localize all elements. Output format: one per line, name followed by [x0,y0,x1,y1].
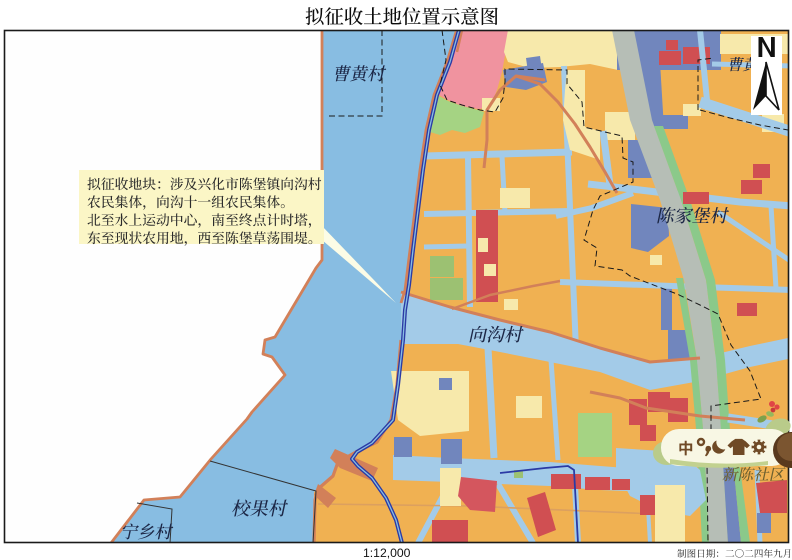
svg-text:1:12,000: 1:12,000 [363,546,411,560]
